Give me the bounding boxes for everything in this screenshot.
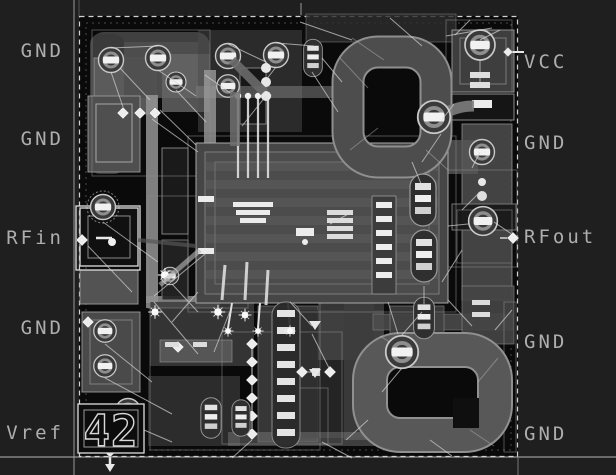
mim-capacitor <box>232 400 250 436</box>
die-marking-text: 42 <box>84 406 139 457</box>
port-label-gnd-left-1: GND <box>0 39 64 63</box>
spiral-inductor-small <box>94 320 117 343</box>
port-label-rfin: RFin <box>0 226 64 250</box>
port-label-gnd-right-3: GND <box>524 422 567 446</box>
mim-capacitor <box>201 398 221 439</box>
layout-viewport: 42 GND GND RFin GND Vref VCC GND RFout G… <box>0 0 616 475</box>
port-label-gnd-left-3: GND <box>0 316 64 340</box>
port-label-vcc: VCC <box>524 50 567 74</box>
spiral-inductor-small <box>94 355 117 378</box>
die-marking-box: 42 <box>78 404 144 457</box>
spiral-inductor-small <box>469 207 498 236</box>
port-label-vref: Vref <box>0 421 64 445</box>
port-label-gnd-right-2: GND <box>524 330 567 354</box>
spiral-inductor-small <box>146 46 171 71</box>
via-bridge-node <box>386 336 419 369</box>
spiral-inductor-small <box>91 195 116 220</box>
mim-capacitor <box>304 39 323 76</box>
mim-capacitor <box>411 230 437 282</box>
spiral-inductor-small <box>99 48 124 73</box>
via-bridge-node <box>418 101 451 134</box>
spiral-inductor-small <box>470 140 495 165</box>
mim-capacitor <box>410 174 436 226</box>
port-label-gnd-left-2: GND <box>0 127 64 151</box>
port-label-rfout: RFout <box>524 225 596 249</box>
port-label-gnd-right-1: GND <box>524 131 567 155</box>
